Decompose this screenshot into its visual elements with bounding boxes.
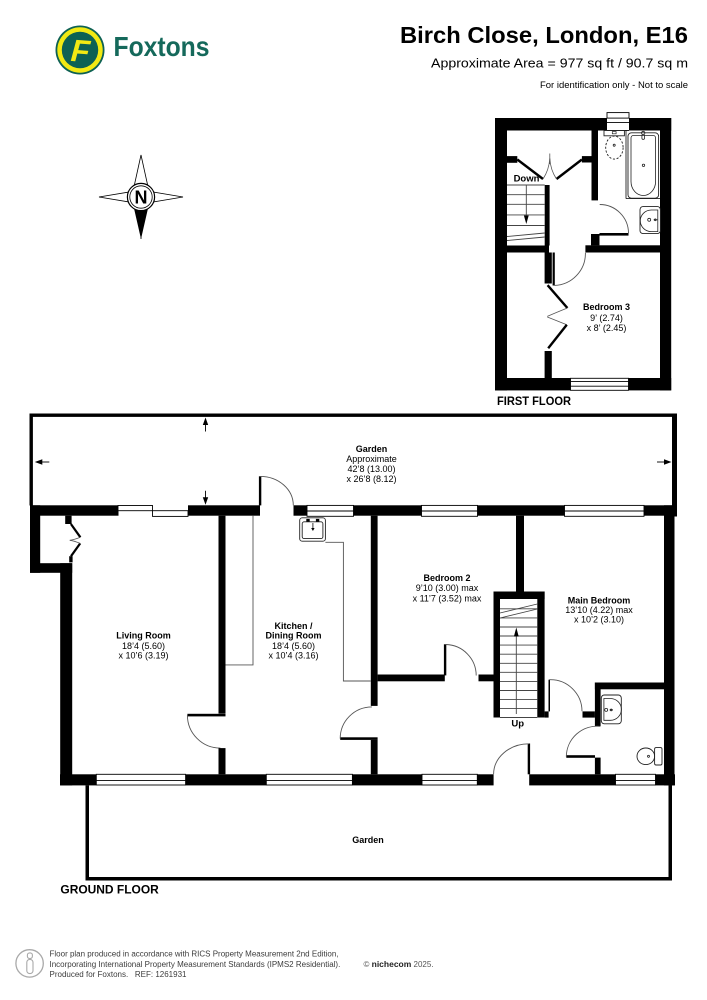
svg-text:Floor plan produced in accorda: Floor plan produced in accordance with R… bbox=[50, 950, 339, 959]
svg-text:GROUND FLOOR: GROUND FLOOR bbox=[60, 883, 159, 897]
svg-text:Produced for Foxtons. REF: 1: Produced for Foxtons. REF: 1261931 bbox=[50, 970, 188, 979]
svg-text:Approximate: Approximate bbox=[346, 454, 397, 464]
svg-text:Down: Down bbox=[514, 174, 540, 185]
svg-text:18’4 (5.60): 18’4 (5.60) bbox=[122, 641, 165, 651]
svg-text:x 26’8 (8.12): x 26’8 (8.12) bbox=[346, 474, 396, 484]
svg-text:Bedroom 2: Bedroom 2 bbox=[423, 573, 470, 583]
svg-text:Bedroom 3: Bedroom 3 bbox=[583, 302, 630, 312]
svg-text:Up: Up bbox=[511, 719, 524, 730]
svg-text:Living Room: Living Room bbox=[116, 631, 171, 641]
svg-text:9’10 (3.00) max: 9’10 (3.00) max bbox=[416, 583, 479, 593]
svg-text:FIRST FLOOR: FIRST FLOOR bbox=[497, 394, 571, 408]
svg-text:N: N bbox=[135, 188, 148, 208]
svg-text:x 11’7 (3.52) max: x 11’7 (3.52) max bbox=[413, 593, 482, 603]
svg-text:Dining Room: Dining Room bbox=[266, 631, 322, 641]
svg-text:Garden: Garden bbox=[352, 835, 384, 845]
svg-text:9’ (2.74): 9’ (2.74) bbox=[590, 313, 623, 323]
svg-text:Birch Close, London, E16: Birch Close, London, E16 bbox=[400, 22, 688, 48]
svg-text:Incorporating International Pr: Incorporating International Property Mea… bbox=[50, 960, 341, 969]
svg-text:F: F bbox=[70, 33, 92, 69]
svg-text:18’4 (5.60): 18’4 (5.60) bbox=[272, 641, 315, 651]
svg-text:For identification only - Not: For identification only - Not to scale bbox=[540, 80, 688, 90]
svg-text:Foxtons: Foxtons bbox=[114, 31, 210, 62]
svg-text:x 10’6 (3.19): x 10’6 (3.19) bbox=[118, 651, 168, 661]
svg-text:x 10’4 (3.16): x 10’4 (3.16) bbox=[268, 651, 318, 661]
svg-text:© nichecom 2025.: © nichecom 2025. bbox=[364, 959, 434, 969]
svg-text:x 8’ (2.45): x 8’ (2.45) bbox=[587, 323, 627, 333]
svg-text:Main Bedroom: Main Bedroom bbox=[568, 595, 631, 605]
svg-text:x 10’2 (3.10): x 10’2 (3.10) bbox=[574, 615, 624, 625]
svg-text:Garden: Garden bbox=[356, 444, 388, 454]
svg-text:42’8 (13.00): 42’8 (13.00) bbox=[347, 464, 395, 474]
svg-text:13’10 (4.22) max: 13’10 (4.22) max bbox=[565, 605, 633, 615]
svg-text:Approximate Area = 977 sq ft /: Approximate Area = 977 sq ft / 90.7 sq m bbox=[431, 57, 688, 71]
svg-text:Kitchen /: Kitchen / bbox=[274, 621, 313, 631]
